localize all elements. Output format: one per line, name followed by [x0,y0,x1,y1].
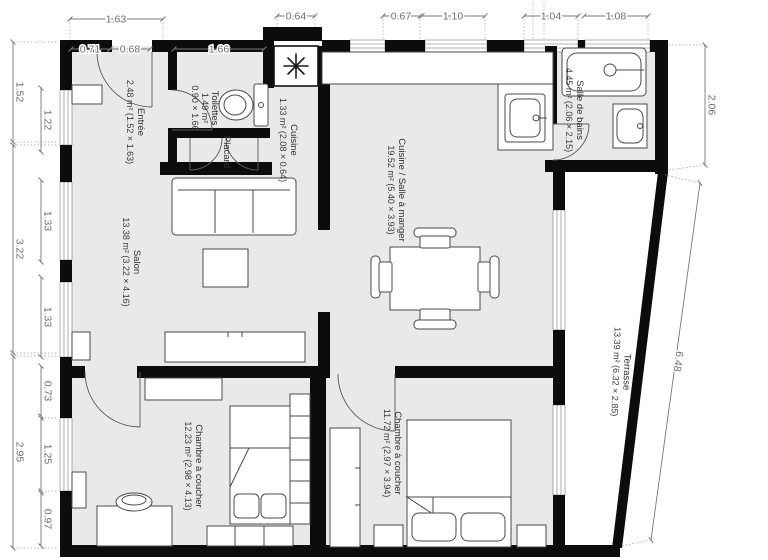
window [60,282,72,357]
wall-segment [168,128,270,138]
dim-label: 0.71 [80,44,101,56]
wall-segment [545,160,668,172]
dim-label: 1.10 [443,11,464,23]
svg-text:Chambre à coucher: Chambre à coucher [193,424,204,507]
dim-label: 1.66 [209,44,230,56]
dim-label: 1.33 [42,211,54,232]
window [60,90,72,145]
wall-segment [60,145,72,182]
bathtub-drain-icon [604,64,616,76]
coffee-table [203,249,248,287]
dresser [145,378,222,400]
wall-segment [318,162,330,175]
wall-segment [60,40,72,90]
hall-shelf [72,85,102,104]
floor-plan-canvas: 1.63 0.71 0.68 1.66 0.64 0.67 1.10 1.04 … [0,0,768,560]
dim-label: 0.97 [42,509,54,530]
wall-segment [137,366,326,378]
pillow [412,513,456,541]
window [425,40,487,52]
sideboard [165,332,305,362]
wall-segment [160,162,272,175]
dim-label: 1.25 [42,444,54,465]
svg-text:12.23 m² (2.98 × 4.13): 12.23 m² (2.98 × 4.13) [183,421,193,510]
desk-chair [116,493,152,511]
wall-segment [655,40,668,174]
svg-text:Placard: Placard [221,136,232,168]
svg-text:4.45 m² (2.06 × 2.15): 4.45 m² (2.06 × 2.15) [564,68,574,152]
nightstand [374,525,403,547]
svg-text:2.48 m² (1.52 × 1.63): 2.48 m² (1.52 × 1.63) [125,80,135,164]
nightstand [517,525,546,547]
svg-text:0.90 × 1.66: 0.90 × 1.66 [190,85,200,130]
pillow [234,494,259,518]
dining-chair [414,228,456,248]
faucet-dot-icon [533,115,539,121]
dining-chair [414,309,456,329]
window [350,40,385,52]
dim-label: 6.48 [671,350,686,372]
dim-label: 1.52 [14,82,26,103]
wall-segment [395,366,557,378]
window [553,210,565,330]
dim-label: 1.22 [42,110,54,131]
wardrobe [330,428,360,547]
svg-text:Salle de bains: Salle de bains [574,80,585,140]
wardrobe-shelves [290,394,310,524]
dim-label: 2.06 [706,95,718,116]
svg-text:1.49 m²: 1.49 m² [200,93,210,124]
dim-label: 1.33 [42,307,54,328]
room-label-chambre2: Chambre à coucher 11.72 m² (2.97 × 3.94) [382,409,403,498]
sofa [172,178,296,235]
room-label-salle-de-bains: Salle de bains 4.45 m² (2.06 × 2.15) [564,68,585,152]
svg-text:1.33 m² (2.08 × 0.64): 1.33 m² (2.08 × 0.64) [278,98,288,182]
dining-table [390,247,480,310]
svg-text:Salon: Salon [131,250,142,274]
svg-text:Entrée: Entrée [135,108,146,136]
wall-segment [385,40,425,52]
room-label-salle-a-manger: Cuisine / Salle à manger 19.52 m² (5.40 … [386,138,407,242]
pillow [461,513,505,541]
dim-label: 1.04 [541,11,562,23]
wall-segment [310,378,326,548]
svg-text:Chambre à coucher: Chambre à coucher [392,411,403,494]
snowflake-icon [284,54,308,78]
dining-chair [478,256,499,298]
wall-segment [487,40,524,52]
window [60,182,72,260]
dim-label: 0.73 [42,381,54,402]
wall-segment [553,495,565,548]
wall-segment [168,46,177,90]
dim-label: 3.22 [14,239,26,260]
toilet-button-icon [259,103,264,108]
svg-text:19.52 m² (5.40 × 3.93): 19.52 m² (5.40 × 3.93) [386,145,396,234]
dim-label: 1.08 [606,11,627,23]
low-shelf [207,526,293,546]
dim-label: 1.63 [106,14,127,26]
kitchen-counter [322,52,553,84]
dim-label: 2.95 [14,442,26,463]
svg-text:13.38 m² (3.22 × 4.16): 13.38 m² (3.22 × 4.16) [121,217,131,306]
radiator [72,332,90,360]
window [60,418,72,491]
dim-label: 0.68 [120,44,141,56]
radiator [72,472,86,508]
wall-segment [60,260,72,282]
svg-text:Cuisine / Salle à manger: Cuisine / Salle à manger [396,138,407,242]
dim-label: 0.64 [286,11,307,23]
wall-segment [553,172,565,210]
floor-plan: 1.63 0.71 0.68 1.66 0.64 0.67 1.10 1.04 … [0,0,768,560]
pillow [261,494,286,518]
desk [97,506,172,546]
room-label-chambre1: Chambre à coucher 12.23 m² (2.98 × 4.13) [183,421,204,510]
dim-label: 0.67 [391,11,412,23]
faucet-dot-icon [638,124,643,129]
dining-chair [371,256,392,298]
svg-text:11.72 m² (2.97 × 3.94): 11.72 m² (2.97 × 3.94) [382,409,392,498]
wall-segment [60,366,85,378]
window [553,405,565,495]
svg-text:Cuisine: Cuisine [288,124,299,156]
wall-segment [263,27,274,88]
room-label-placard: Placard [221,136,232,168]
